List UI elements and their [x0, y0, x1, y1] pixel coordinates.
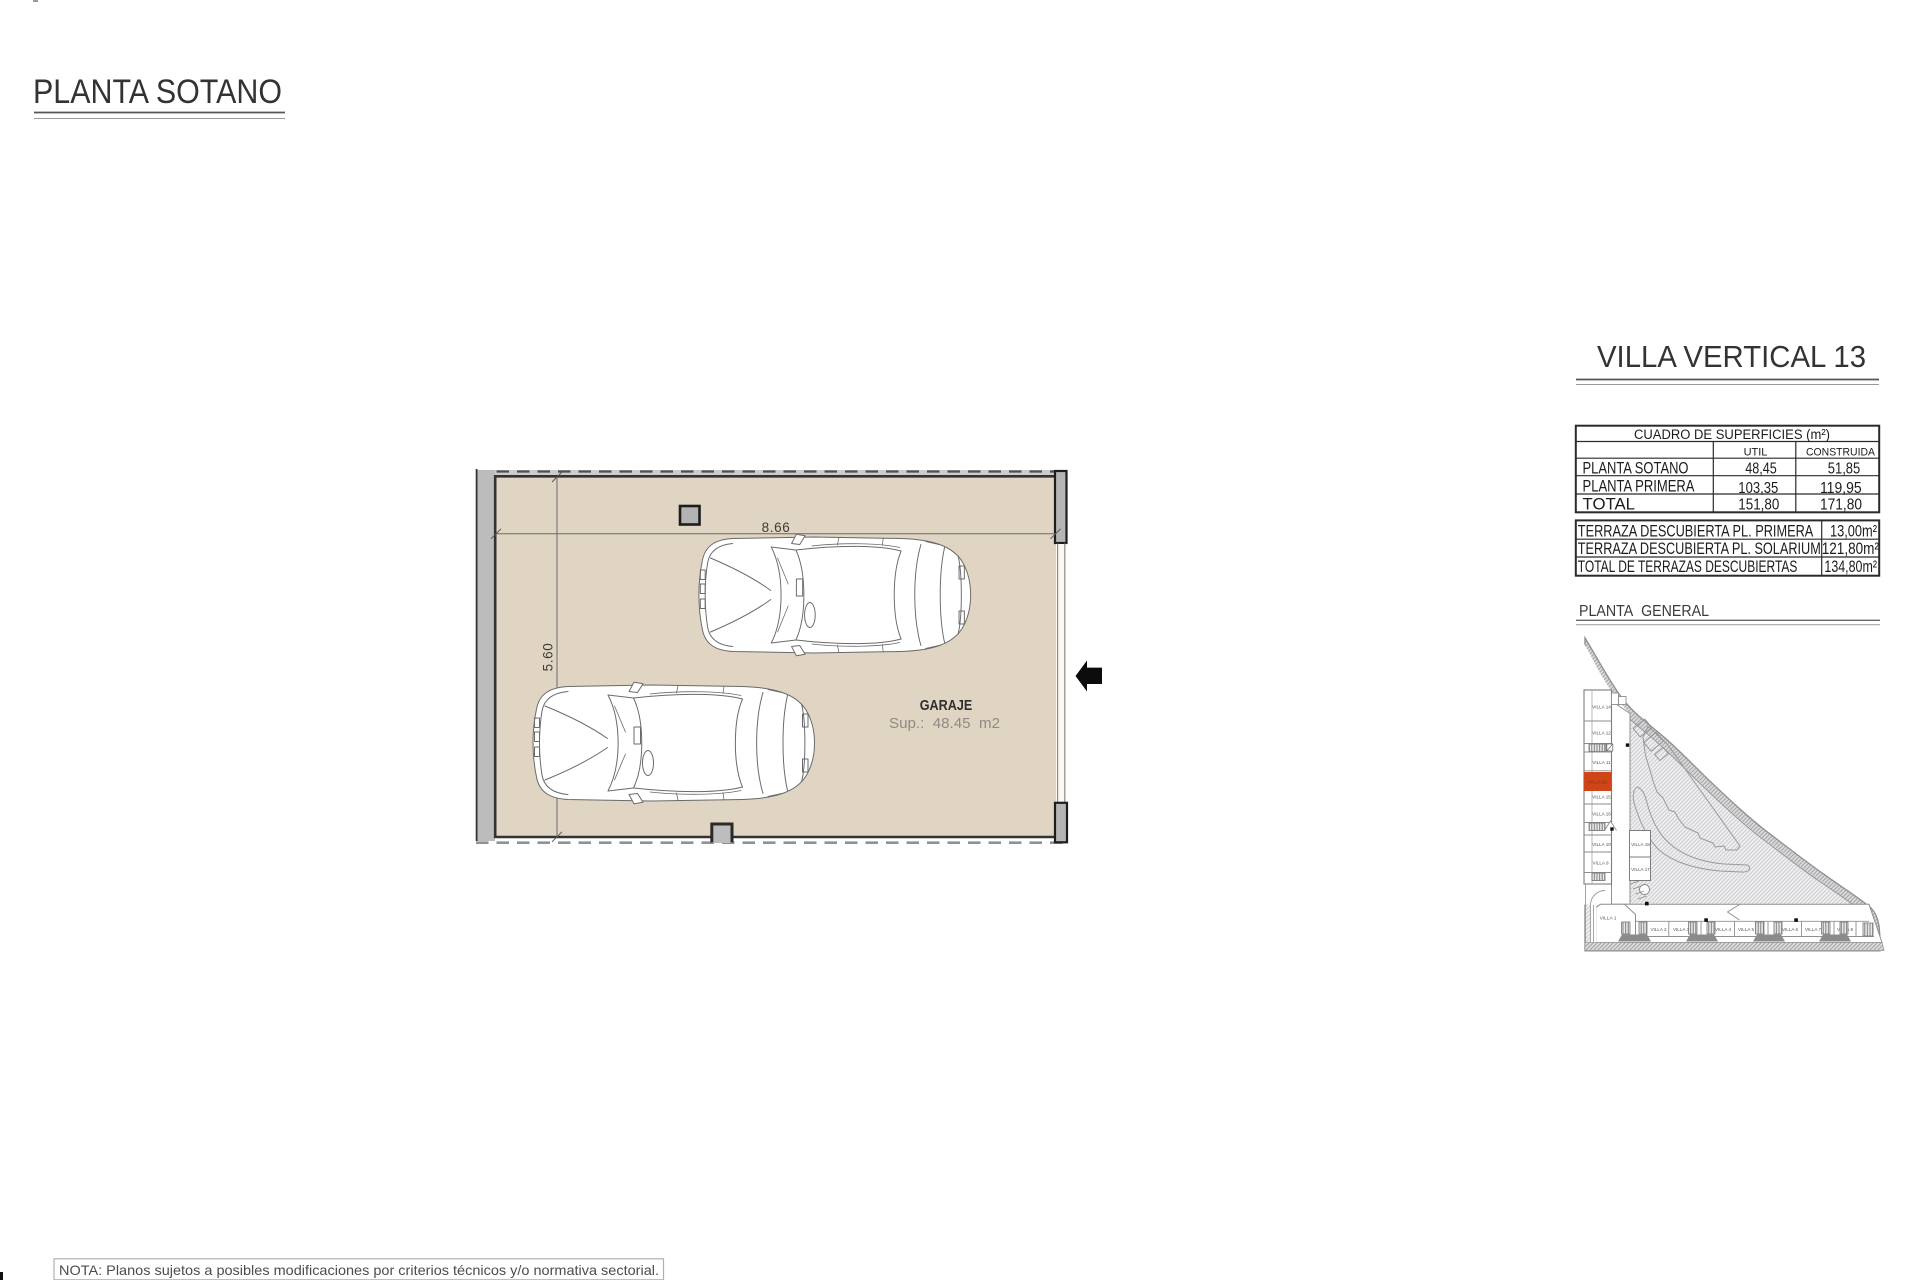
svg-text:VILLA 13: VILLA 13 [1588, 780, 1607, 785]
svg-text:VILLA VERTICAL 13: VILLA VERTICAL 13 [1597, 339, 1866, 374]
svg-text:GARAJE: GARAJE [920, 698, 973, 714]
svg-text:8.66: 8.66 [762, 520, 791, 535]
svg-text:VILLA 14: VILLA 14 [1592, 705, 1611, 710]
svg-text:TERRAZA DESCUBIERTA PL. SOLARI: TERRAZA DESCUBIERTA PL. SOLARIUM [1578, 540, 1821, 558]
svg-text:Sup.: 48.45 m2: Sup.: 48.45 m2 [889, 716, 1000, 732]
svg-text:PLANTA SOTANO: PLANTA SOTANO [33, 73, 282, 111]
svg-text:134,80m²: 134,80m² [1824, 558, 1877, 576]
svg-text:48,45: 48,45 [1745, 461, 1777, 478]
svg-text:VILLA 18: VILLA 18 [1631, 842, 1650, 847]
svg-text:VILLA 15: VILLA 15 [1592, 795, 1611, 800]
svg-text:VILLA 6: VILLA 6 [1782, 927, 1799, 932]
svg-text:171,80: 171,80 [1820, 497, 1862, 514]
svg-text:VILLA 9: VILLA 9 [1592, 861, 1609, 866]
svg-text:51,85: 51,85 [1828, 461, 1861, 478]
svg-text:TOTAL: TOTAL [1583, 495, 1636, 514]
svg-text:PLANTA PRIMERA: PLANTA PRIMERA [1583, 477, 1695, 496]
svg-text:PLANTA SOTANO: PLANTA SOTANO [1583, 459, 1689, 478]
svg-text:VILLA 5: VILLA 5 [1738, 927, 1755, 932]
svg-text:119,95: 119,95 [1820, 480, 1862, 497]
svg-text:151,80: 151,80 [1738, 497, 1779, 514]
svg-text:103,35: 103,35 [1738, 480, 1778, 497]
svg-text:VILLA 3: VILLA 3 [1673, 927, 1690, 932]
svg-text:CUADRO DE SUPERFICIES (m²): CUADRO DE SUPERFICIES (m²) [1634, 427, 1830, 443]
svg-text:UTIL: UTIL [1744, 447, 1768, 459]
svg-text:VILLA 11: VILLA 11 [1592, 760, 1611, 765]
svg-text:TOTAL DE TERRAZAS DESCUBIERTAS: TOTAL DE TERRAZAS DESCUBIERTAS [1578, 558, 1798, 576]
svg-text:NOTA: Planos sujetos a posible: NOTA: Planos sujetos a posibles modifica… [59, 1263, 659, 1278]
svg-text:PLANTA GENERAL: PLANTA GENERAL [1579, 603, 1709, 620]
svg-text:13,00m²: 13,00m² [1830, 522, 1877, 540]
svg-text:VILLA 7: VILLA 7 [1805, 927, 1822, 932]
svg-text:VILLA 16: VILLA 16 [1592, 812, 1611, 817]
svg-text:5.60: 5.60 [541, 643, 556, 672]
svg-text:VILLA 1: VILLA 1 [1600, 916, 1617, 922]
svg-text:VILLA 2: VILLA 2 [1650, 927, 1667, 932]
svg-text:VILLA 12: VILLA 12 [1592, 731, 1611, 736]
svg-text:VILLA 10: VILLA 10 [1592, 842, 1611, 847]
svg-text:VILLA 4: VILLA 4 [1715, 927, 1732, 932]
svg-text:121,80m²: 121,80m² [1822, 540, 1880, 558]
svg-text:TERRAZA DESCUBIERTA PL. PRIMER: TERRAZA DESCUBIERTA PL. PRIMERA [1578, 522, 1814, 540]
svg-text:VILLA 17: VILLA 17 [1631, 867, 1650, 872]
svg-text:CONSTRUIDA: CONSTRUIDA [1806, 447, 1876, 459]
